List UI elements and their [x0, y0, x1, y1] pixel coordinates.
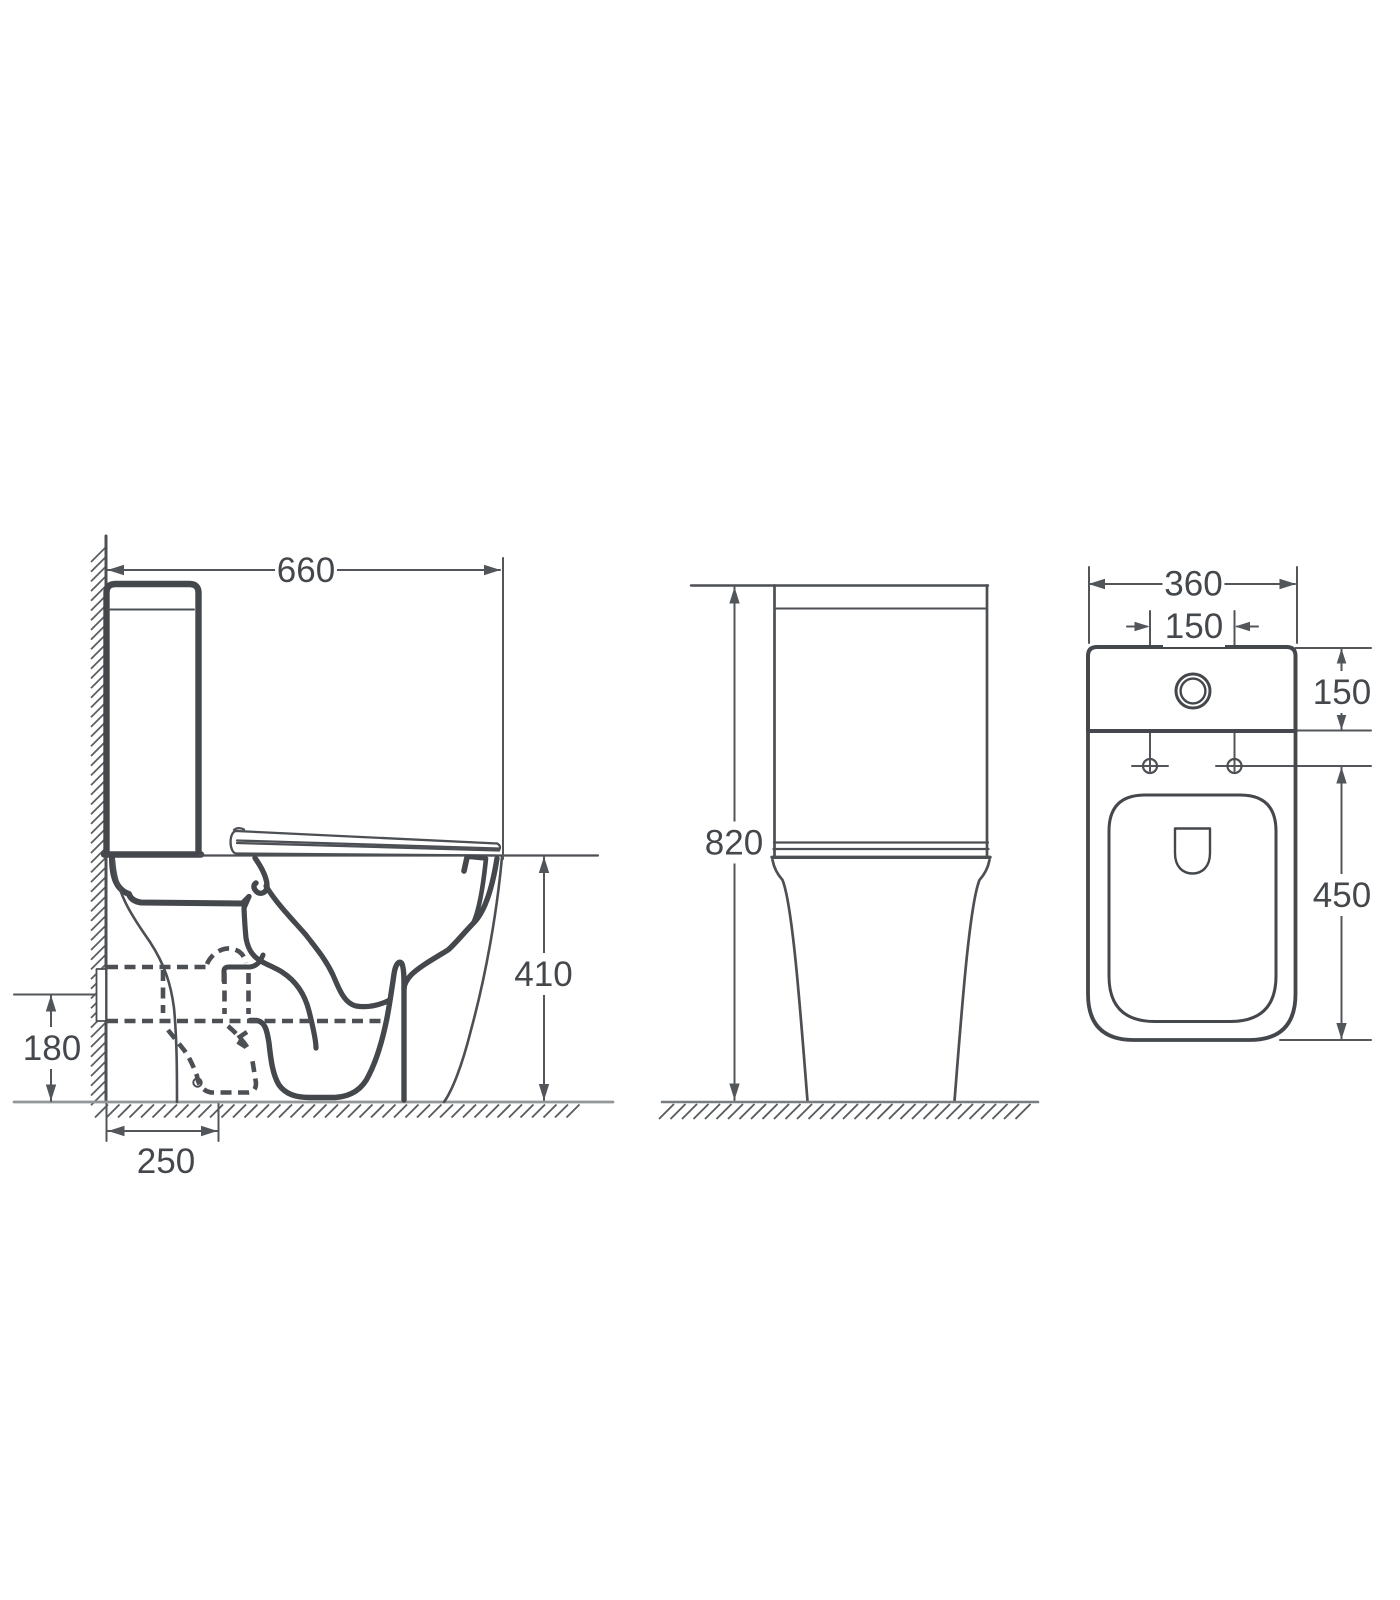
svg-text:150: 150: [1313, 673, 1371, 712]
svg-text:250: 250: [137, 1142, 195, 1181]
svg-text:660: 660: [277, 551, 335, 590]
svg-text:150: 150: [1165, 607, 1223, 646]
svg-text:450: 450: [1313, 876, 1371, 915]
svg-text:180: 180: [23, 1029, 81, 1068]
svg-text:410: 410: [514, 955, 572, 994]
svg-text:820: 820: [705, 824, 763, 863]
svg-text:360: 360: [1164, 565, 1222, 604]
